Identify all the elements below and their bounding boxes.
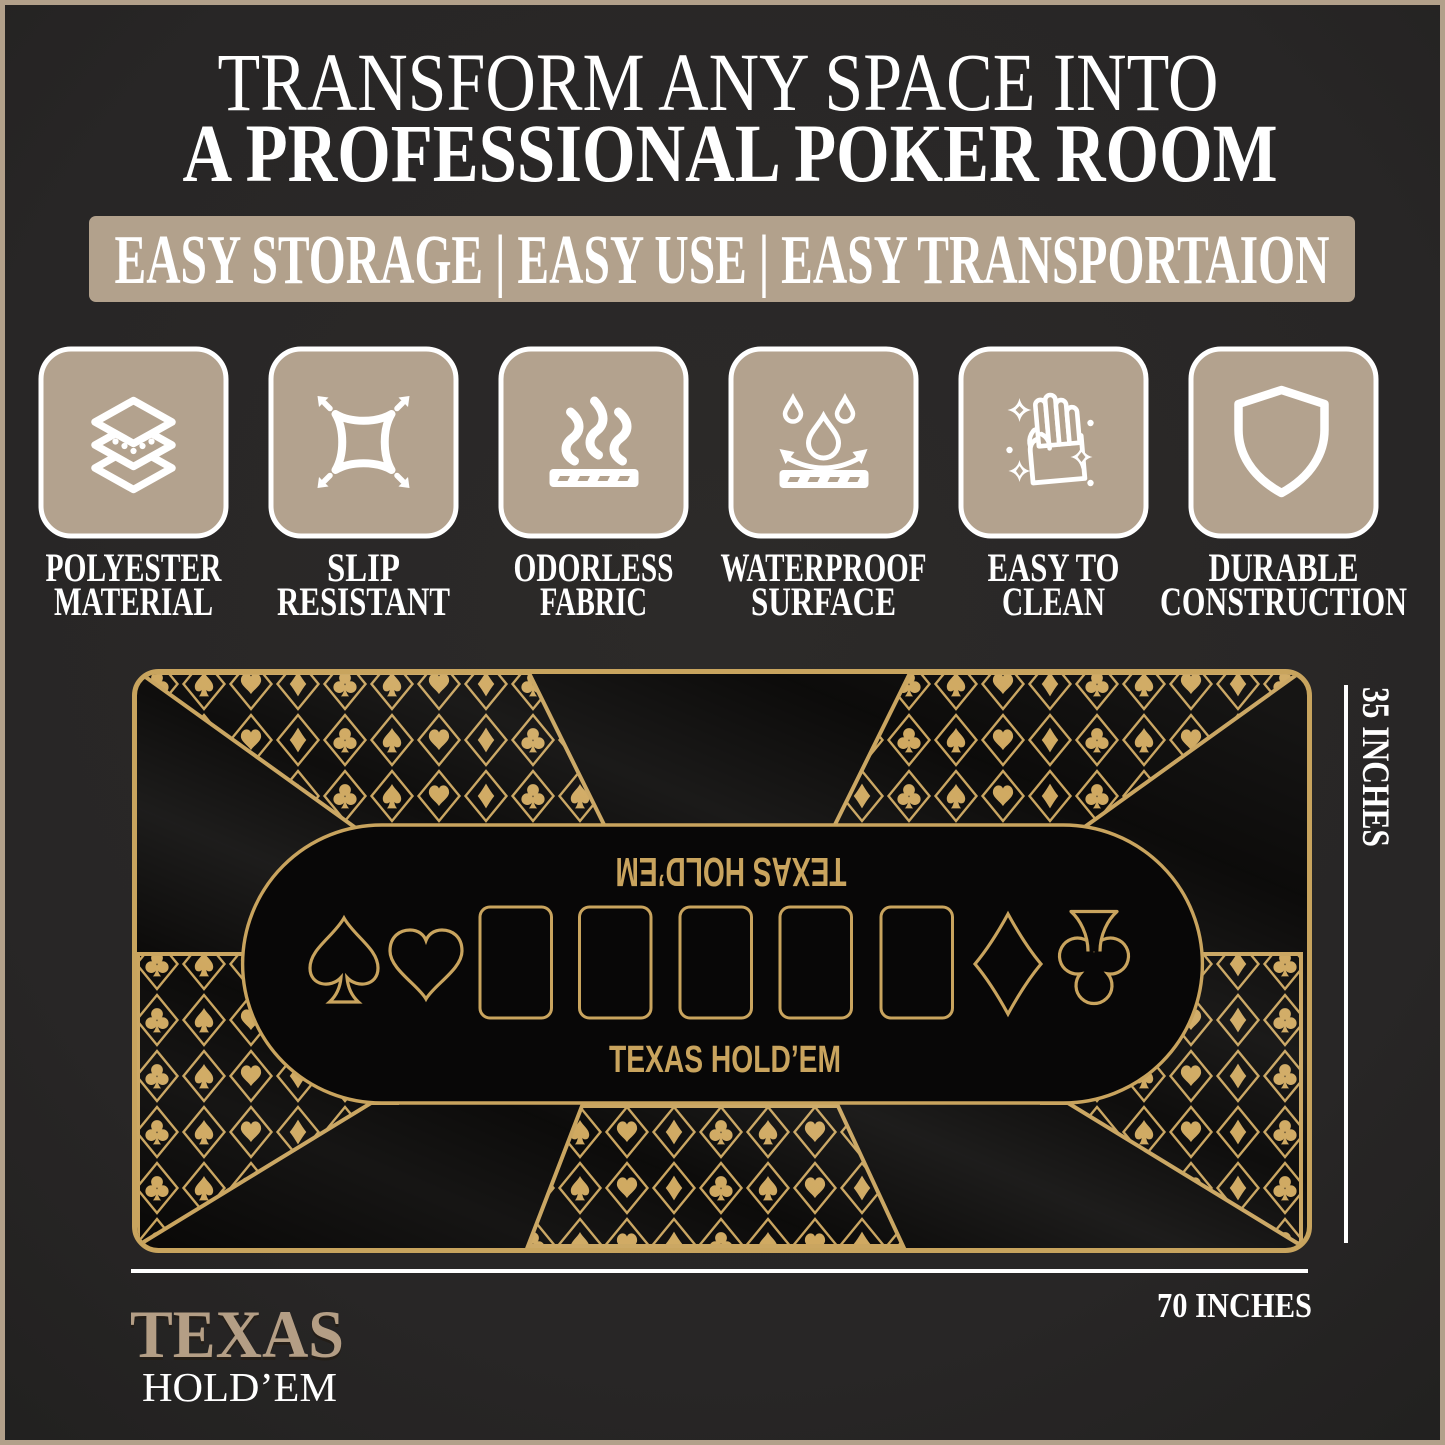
- svg-text:35 INCHES: 35 INCHES: [1354, 687, 1397, 847]
- svg-text:FABRIC: FABRIC: [540, 579, 647, 624]
- svg-text:TEXAS: TEXAS: [130, 1296, 344, 1372]
- svg-text:TEXAS HOLD’EM: TEXAS HOLD’EM: [609, 1039, 841, 1081]
- svg-text:TEXAS HOLD’EM: TEXAS HOLD’EM: [616, 849, 847, 895]
- svg-text:RESISTANT: RESISTANT: [277, 579, 450, 624]
- svg-text:EASY STORAGE | EASY USE | EASY: EASY STORAGE | EASY USE | EASY TRANSPORT…: [115, 222, 1330, 299]
- svg-text:SURFACE: SURFACE: [751, 579, 896, 624]
- svg-text:HOLD’EM: HOLD’EM: [142, 1364, 337, 1410]
- svg-text:MATERIAL: MATERIAL: [54, 579, 213, 624]
- svg-text:A PROFESSIONAL POKER ROOM: A PROFESSIONAL POKER ROOM: [183, 107, 1278, 199]
- svg-text:CLEAN: CLEAN: [1002, 579, 1105, 624]
- svg-text:70 INCHES: 70 INCHES: [1157, 1286, 1312, 1325]
- svg-text:CONSTRUCTION: CONSTRUCTION: [1160, 579, 1407, 624]
